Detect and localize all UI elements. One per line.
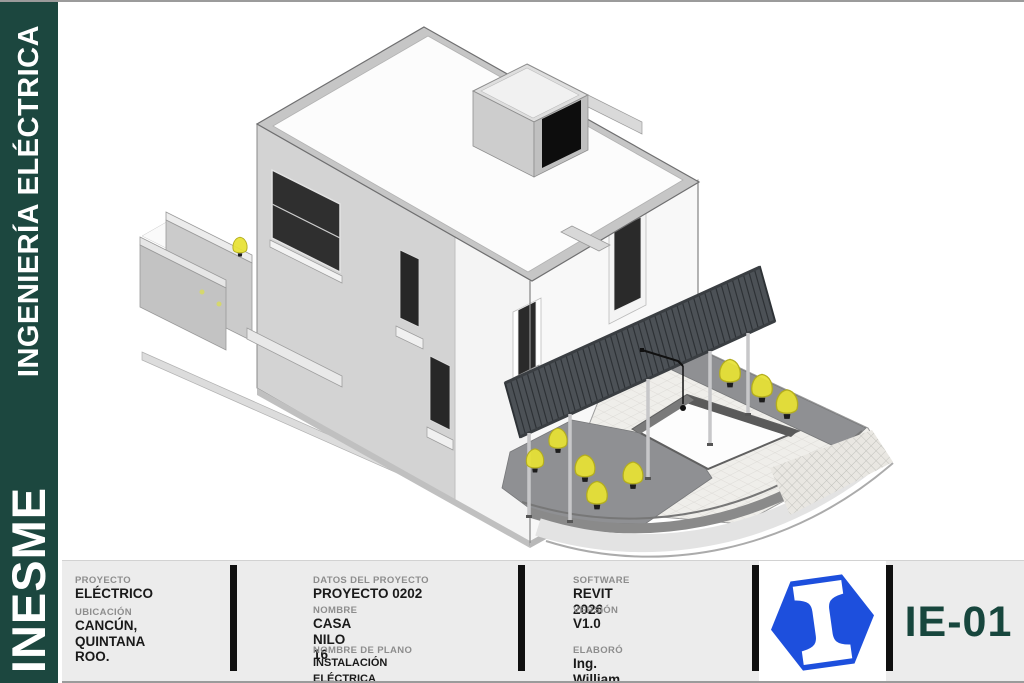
- drawing-sheet: INGENIERÍA ELÉCTRICA INESME PROYECTO ELÉ…: [0, 0, 1024, 683]
- field-value: PROYECTO 0202: [313, 586, 429, 602]
- title-block: PROYECTO ELÉCTRICO UBICACIÓN CANCÚN, QUI…: [62, 560, 1024, 683]
- sheet-top-border: [0, 0, 1024, 2]
- field-value: CANCÚN, QUINTANA ROO.: [75, 618, 145, 665]
- field-label: SOFTWARE: [573, 575, 630, 586]
- field-label: UBICACIÓN: [75, 607, 145, 618]
- divider: [752, 565, 759, 671]
- field-value: Ing. William López Pérez: [573, 656, 623, 683]
- sheet-number: IE-01: [905, 598, 1013, 647]
- field-label: VERSIÓN: [573, 605, 618, 616]
- sheet-number-panel: IE-01: [893, 561, 1024, 683]
- divider: [886, 565, 893, 671]
- field-label: NOMBRE DE PLANO: [313, 645, 412, 656]
- field-value: ELÉCTRICO: [75, 586, 153, 602]
- courtyard: [140, 212, 252, 350]
- inesme-logo-icon: [765, 565, 880, 680]
- company-logo-panel: [759, 561, 886, 683]
- sidebar: INGENIERÍA ELÉCTRICA INESME: [0, 0, 58, 683]
- company-name: INESME: [0, 460, 58, 683]
- field-label: DATOS DEL PROYECTO: [313, 575, 429, 586]
- field-value: INSTALACIÓN ELÉCTRICA: [313, 656, 412, 683]
- sidebar-vertical-title: INGENIERÍA ELÉCTRICA: [0, 0, 58, 411]
- field-value: V1.0: [573, 616, 618, 632]
- divider: [230, 565, 237, 671]
- divider: [518, 565, 525, 671]
- field-label: ELABORÓ: [573, 645, 623, 656]
- field-label: NOMBRE: [313, 605, 357, 616]
- field-label: PROYECTO: [75, 575, 153, 586]
